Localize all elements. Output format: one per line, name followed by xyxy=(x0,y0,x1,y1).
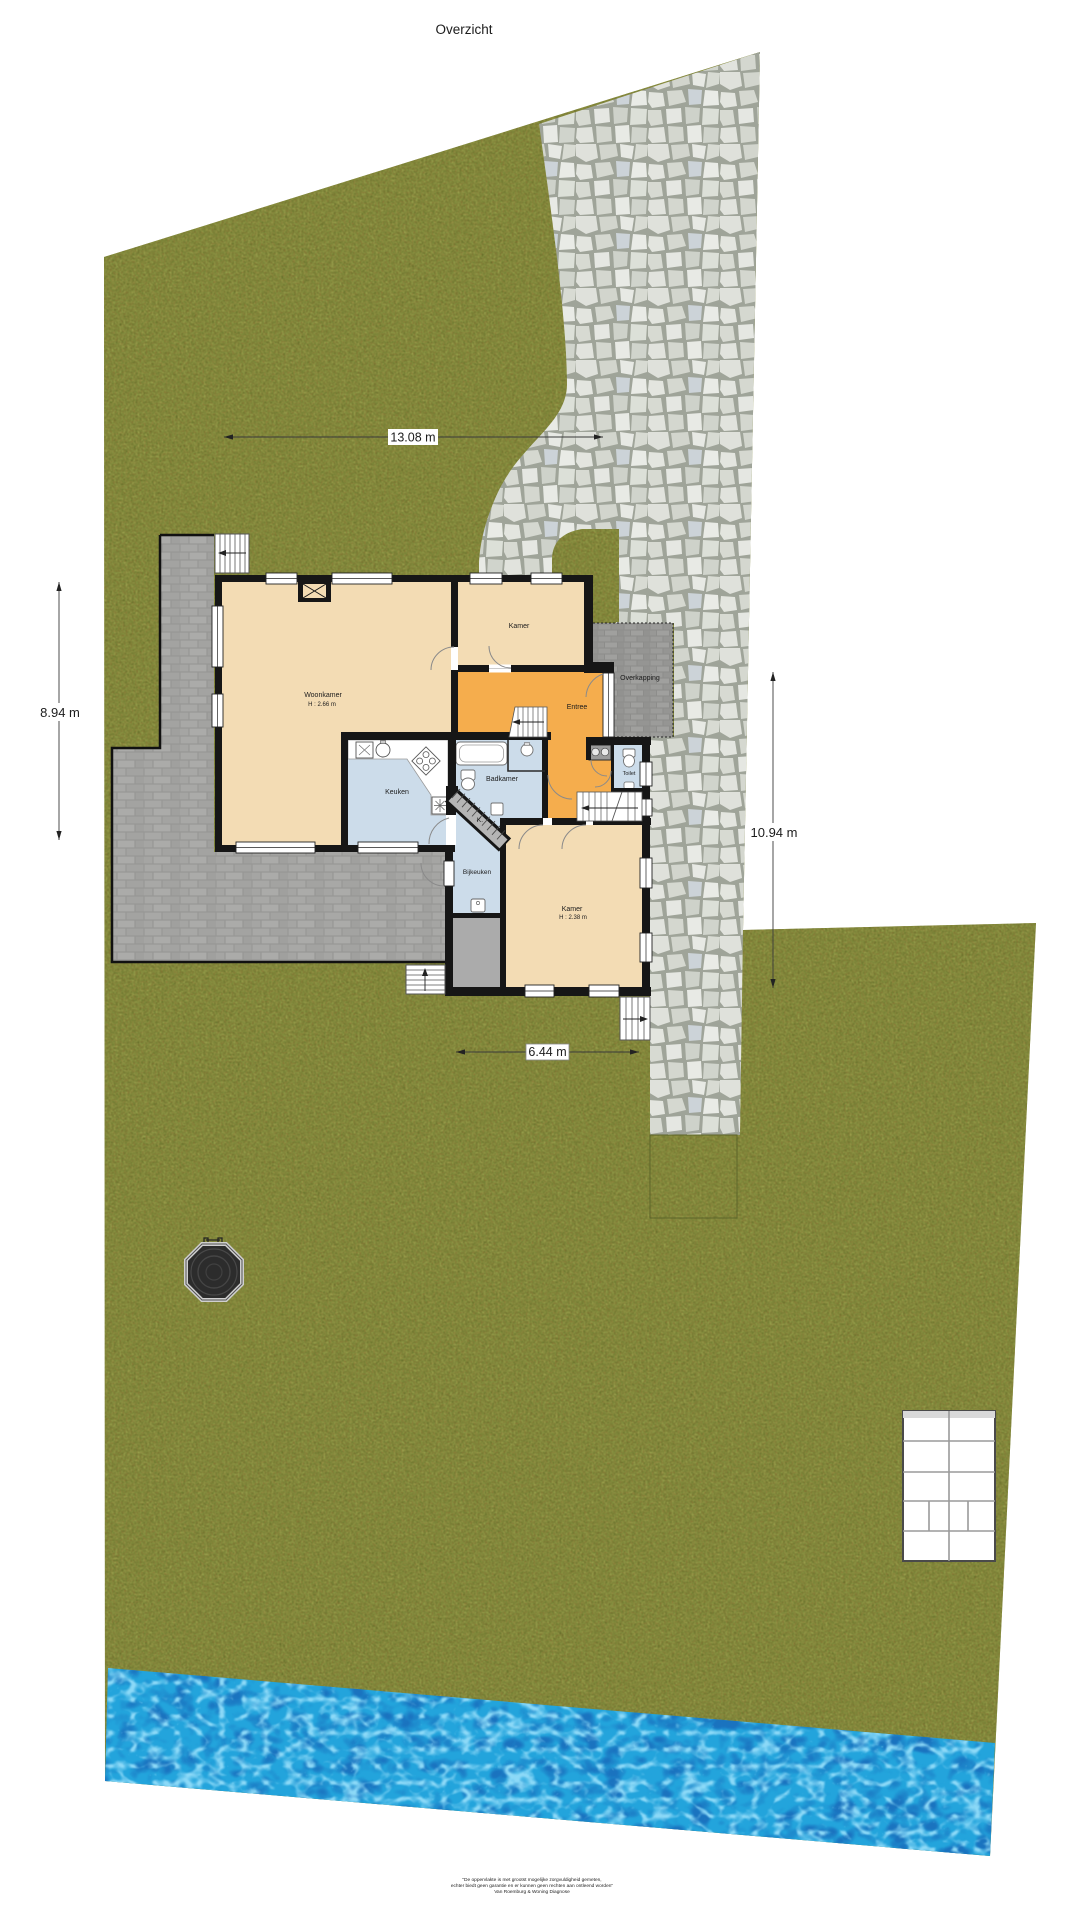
svg-text:Badkamer: Badkamer xyxy=(486,776,519,783)
svg-text:K.: K. xyxy=(477,817,483,824)
svg-text:10.94 m: 10.94 m xyxy=(751,825,798,840)
svg-text:Entree: Entree xyxy=(567,704,588,711)
svg-text:6.44 m: 6.44 m xyxy=(528,1045,566,1059)
svg-text:"De oppervlakte is met grootst: "De oppervlakte is met grootst mogelijke… xyxy=(462,1877,601,1883)
svg-text:H : 2.38 m: H : 2.38 m xyxy=(559,915,587,921)
svg-text:Woonkamer: Woonkamer xyxy=(304,692,342,699)
svg-text:Kamer: Kamer xyxy=(509,623,530,630)
svg-text:8.94 m: 8.94 m xyxy=(40,705,80,720)
svg-text:Bijkeuken: Bijkeuken xyxy=(463,869,492,876)
svg-text:13.08 m: 13.08 m xyxy=(390,431,435,445)
svg-text:Keuken: Keuken xyxy=(385,789,409,796)
svg-text:Overkapping: Overkapping xyxy=(620,675,660,682)
svg-text:H : 2.66 m: H : 2.66 m xyxy=(308,702,336,708)
svg-text:Van Roemburg & Woning Diagnose: Van Roemburg & Woning Diagnose xyxy=(494,1889,570,1895)
svg-text:Overzicht: Overzicht xyxy=(435,22,492,37)
svg-text:echter biedt geen garantie en: echter biedt geen garantie en er kunnen … xyxy=(451,1883,614,1889)
svg-text:Toilet: Toilet xyxy=(623,771,636,777)
svg-text:Kamer: Kamer xyxy=(562,906,583,913)
